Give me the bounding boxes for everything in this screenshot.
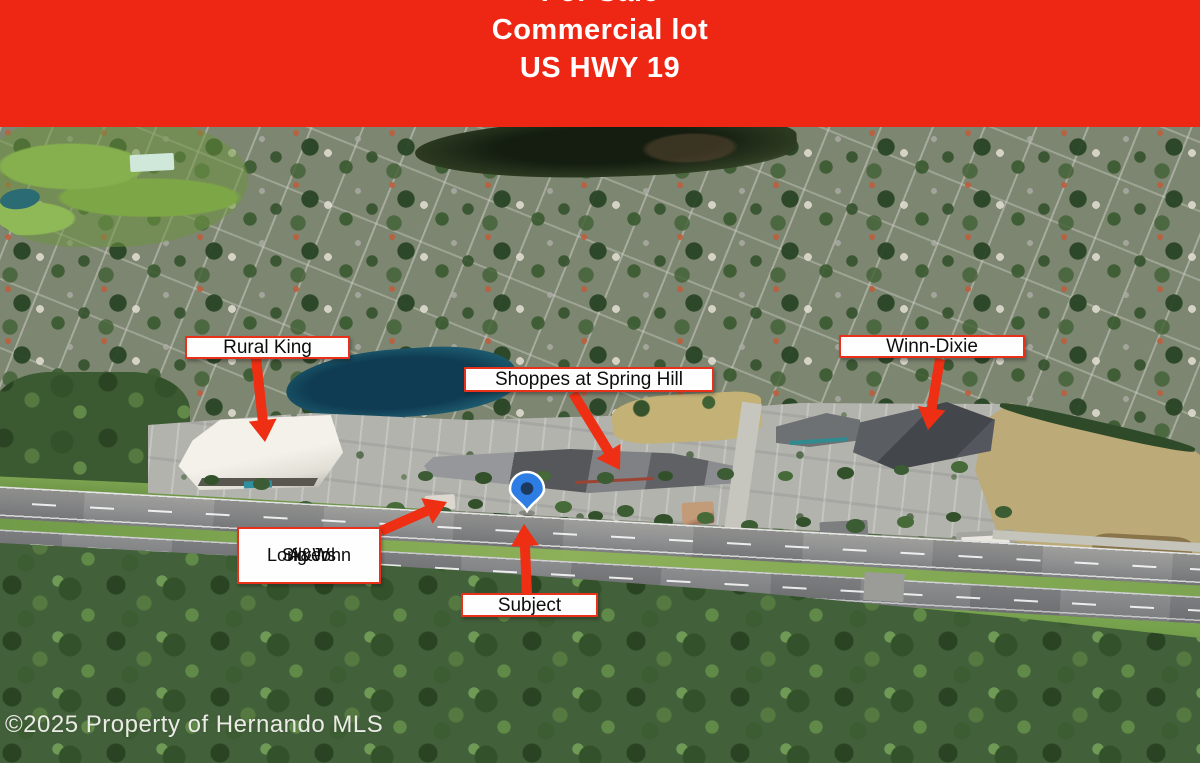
banner-text: For Sale Commercial lot US HWY 19 [0, 0, 1200, 87]
clubhouse-building [130, 153, 175, 172]
outparcel-building-1 [681, 501, 714, 525]
banner-line-3: US HWY 19 [0, 49, 1200, 87]
label-subject: Subject [461, 593, 598, 617]
banner-line-2: Commercial lot [0, 11, 1200, 49]
label-shoppes-text: Shoppes at Spring Hill [495, 370, 683, 389]
median-crossover [863, 572, 905, 602]
label-winn-dixie-text: Winn-Dixie [886, 337, 978, 356]
label-rural-king: Rural King [185, 336, 350, 359]
for-sale-banner: For Sale Commercial lot US HWY 19 [0, 0, 1200, 127]
rural-king-awning [244, 481, 272, 489]
label-aw-long-john-silvers: A&W Long John Silvers [237, 527, 381, 584]
aw-ljs-building [425, 494, 456, 511]
label-aw-line-3: Silvers [282, 546, 336, 565]
label-shoppes-at-spring-hill: Shoppes at Spring Hill [464, 367, 714, 392]
label-winn-dixie: Winn-Dixie [839, 335, 1025, 358]
parking-lot-trees [0, 127, 15, 137]
label-subject-text: Subject [498, 596, 561, 615]
flyer-canvas: For Sale Commercial lot US HWY 19 [0, 0, 1200, 763]
copyright-watermark: ©2025 Property of Hernando MLS [5, 711, 383, 739]
label-rural-king-text: Rural King [223, 338, 312, 357]
banner-line-1: For Sale [0, 0, 1200, 11]
aerial-photo: Rural King Shoppes at Spring Hill Winn-D… [0, 127, 1200, 763]
